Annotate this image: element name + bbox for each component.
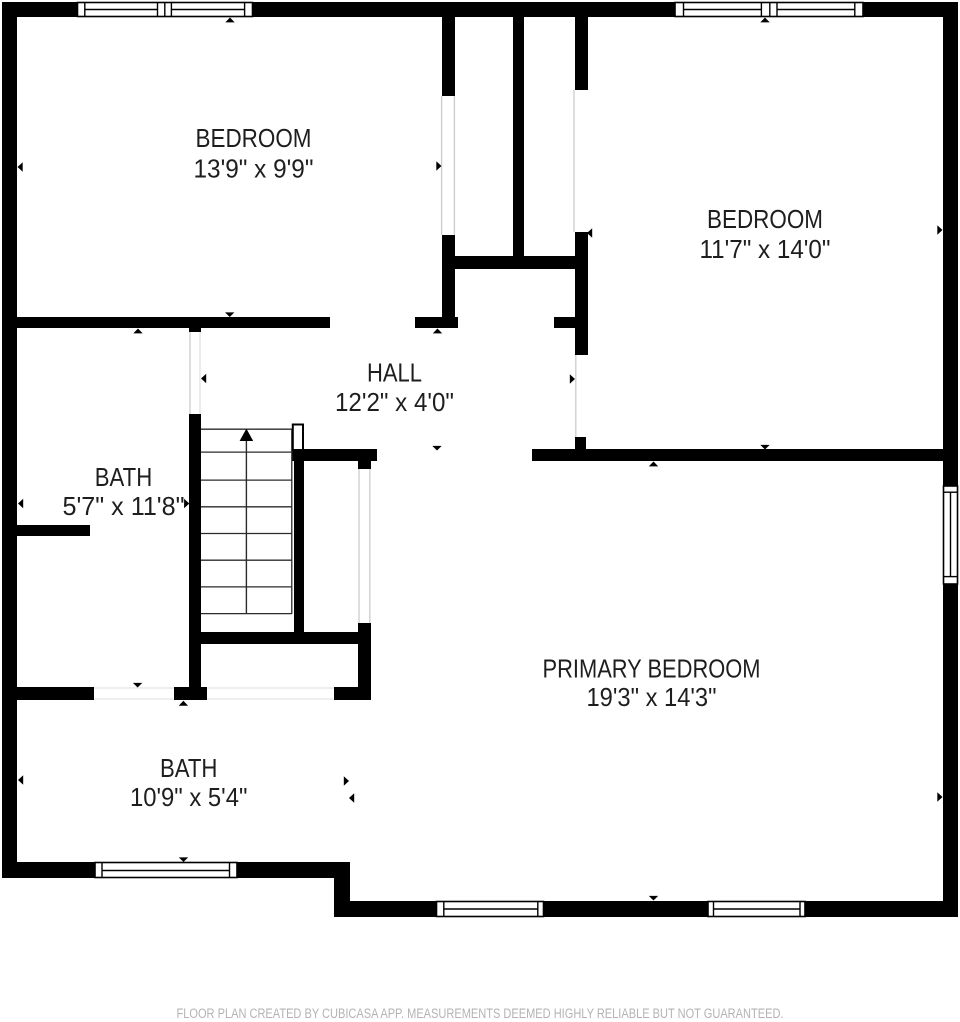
svg-text:13'9" x 9'9": 13'9" x 9'9" [194, 154, 314, 184]
svg-text:BEDROOM: BEDROOM [196, 123, 312, 153]
svg-text:HALL: HALL [367, 358, 422, 388]
svg-text:FLOOR PLAN CREATED BY CUBICASA: FLOOR PLAN CREATED BY CUBICASA APP. MEAS… [177, 1006, 784, 1021]
svg-text:11'7" x 14'0": 11'7" x 14'0" [700, 234, 831, 264]
svg-text:BATH: BATH [160, 753, 218, 783]
svg-text:5'7" x 11'8": 5'7" x 11'8" [63, 491, 185, 521]
svg-text:BATH: BATH [95, 462, 153, 492]
svg-text:PRIMARY BEDROOM: PRIMARY BEDROOM [543, 654, 761, 684]
svg-text:19'3" x 14'3": 19'3" x 14'3" [587, 682, 717, 712]
svg-text:BEDROOM: BEDROOM [707, 204, 823, 234]
svg-text:10'9" x 5'4": 10'9" x 5'4" [130, 782, 248, 812]
svg-text:12'2" x 4'0": 12'2" x 4'0" [335, 387, 454, 417]
